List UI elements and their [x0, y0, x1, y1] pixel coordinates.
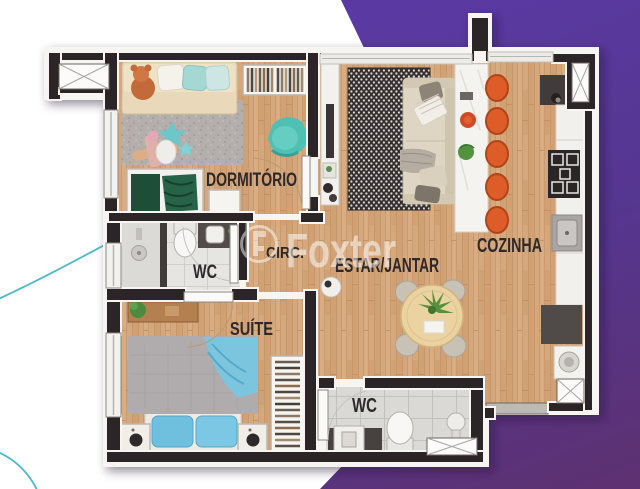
svg-text:WC: WC — [193, 262, 217, 283]
svg-text:DORMITÓRIO: DORMITÓRIO — [206, 169, 297, 191]
svg-text:Foxter: Foxter — [286, 225, 396, 278]
svg-text:WC: WC — [352, 395, 377, 417]
svg-text:SUÍTE: SUÍTE — [230, 318, 273, 339]
svg-text:COZINHA: COZINHA — [477, 235, 542, 257]
